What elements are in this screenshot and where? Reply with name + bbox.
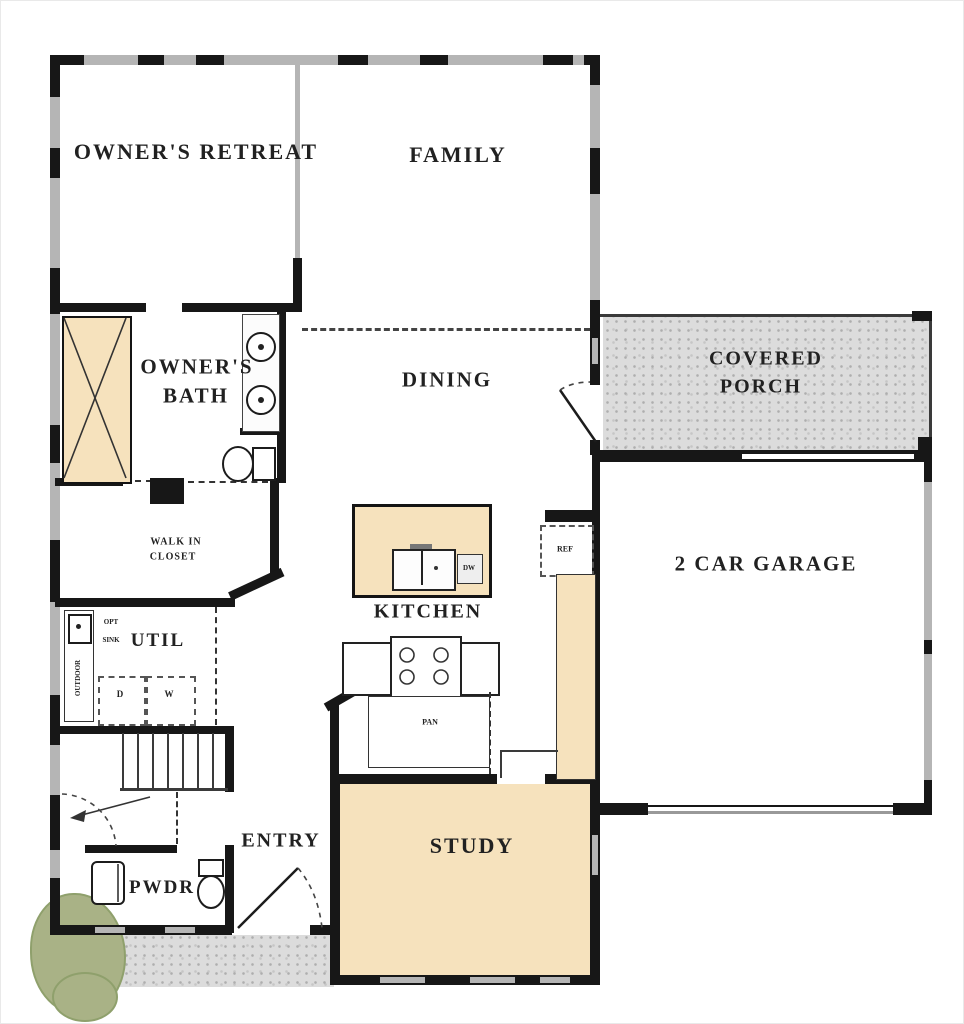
room-label-owners-bath-line2: BATH (163, 384, 229, 409)
label-pantry: PAN (422, 718, 438, 727)
bath-sink-drain (258, 344, 264, 350)
bath-toilet-bowl (223, 447, 253, 481)
room-label-owners-retreat: OWNER'S RETREAT (74, 139, 318, 165)
porch-door-leaf (560, 390, 596, 442)
pwdr-toilet-bowl (198, 876, 224, 908)
entry-door-swing (298, 868, 322, 928)
floor-plan: OWNER'S RETREAT FAMILY OWNER'S BATH DINI… (0, 0, 964, 1024)
label-dryer: D (117, 689, 124, 699)
label-opt-sink-line2: SINK (102, 636, 119, 644)
label-refrigerator: REF (557, 545, 573, 554)
understair-arc (62, 794, 116, 846)
bath-sink-drain (258, 397, 264, 403)
bath-toilet-tank (253, 448, 275, 480)
entry-door-leaf (238, 868, 298, 928)
pwdr-toilet-tank (199, 860, 223, 876)
room-label-family: FAMILY (409, 142, 507, 168)
label-outdoor: OUTDOOR (74, 660, 82, 696)
room-label-kitchen: KITCHEN (374, 601, 482, 624)
room-label-dining: DINING (402, 368, 492, 393)
room-label-walk-in-closet-line2: CLOSET (150, 552, 197, 563)
room-label-entry: ENTRY (241, 830, 320, 853)
range-burner (400, 648, 414, 662)
label-washer: W (165, 689, 174, 699)
room-label-covered-porch-line2: PORCH (720, 376, 802, 399)
pwdr-sink (92, 862, 124, 904)
room-label-walk-in-closet-line1: WALK IN (150, 537, 201, 548)
room-label-study: STUDY (430, 833, 515, 859)
range-burner (434, 670, 448, 684)
room-label-covered-porch-line1: COVERED (709, 348, 823, 371)
porch-door-swing (560, 382, 590, 390)
label-opt-sink-line1: OPT (104, 618, 118, 626)
stair-arrowhead (70, 810, 86, 822)
range-burner (434, 648, 448, 662)
room-label-garage: 2 CAR GARAGE (675, 552, 858, 577)
range-burner (400, 670, 414, 684)
room-label-pwdr: PWDR (129, 877, 195, 899)
room-label-util: UTIL (131, 630, 185, 652)
room-label-owners-bath-line1: OWNER'S (140, 355, 253, 380)
stair-arrow (78, 797, 150, 816)
label-dishwasher: DW (463, 564, 475, 572)
